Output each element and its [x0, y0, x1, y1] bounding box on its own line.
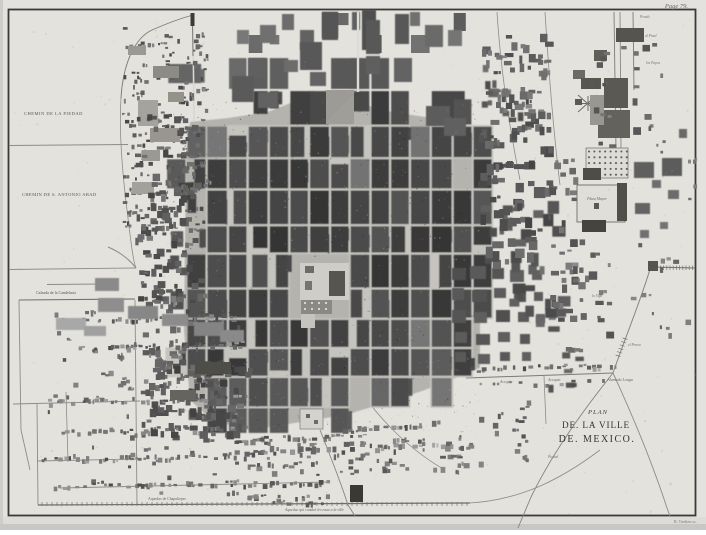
svg-text:Alameda Longa: Alameda Longa [606, 377, 632, 382]
svg-text:Aqueduc de Chapultepec: Aqueduc de Chapultepec [148, 497, 186, 501]
svg-text:la Viga: la Viga [592, 294, 602, 298]
svg-text:el Penon: el Penon [628, 343, 641, 347]
svg-text:CHEMIN DE LA PIEDAD: CHEMIN DE LA PIEDAD [24, 111, 83, 116]
svg-text:Plaza Mayor: Plaza Mayor [586, 197, 607, 201]
svg-text:DE. LA VILLE: DE. LA VILLE [562, 420, 630, 430]
svg-text:los Papos: los Papos [646, 61, 661, 65]
svg-text:CHEMIN DE S. ANTONIO ABAD: CHEMIN DE S. ANTONIO ABAD [22, 192, 97, 197]
svg-text:Piedad: Piedad [547, 455, 558, 459]
svg-text:Aqueduc qui conduit les eaux a: Aqueduc qui conduit les eaux a la ville [284, 508, 344, 512]
svg-text:PLAN: PLAN [587, 409, 608, 416]
svg-text:B. Tardieu sc.: B. Tardieu sc. [674, 519, 697, 524]
svg-text:DE. MEXICO.: DE. MEXICO. [559, 434, 636, 445]
svg-text:Acequia: Acequia [499, 380, 513, 384]
svg-text:Penale: Penale [639, 15, 650, 19]
svg-text:Page 79.: Page 79. [664, 3, 688, 10]
svg-text:Acequia: Acequia [547, 378, 561, 382]
svg-text:al Pinal: al Pinal [645, 34, 656, 38]
svg-text:Calzada de la Candelaria: Calzada de la Candelaria [36, 290, 76, 295]
